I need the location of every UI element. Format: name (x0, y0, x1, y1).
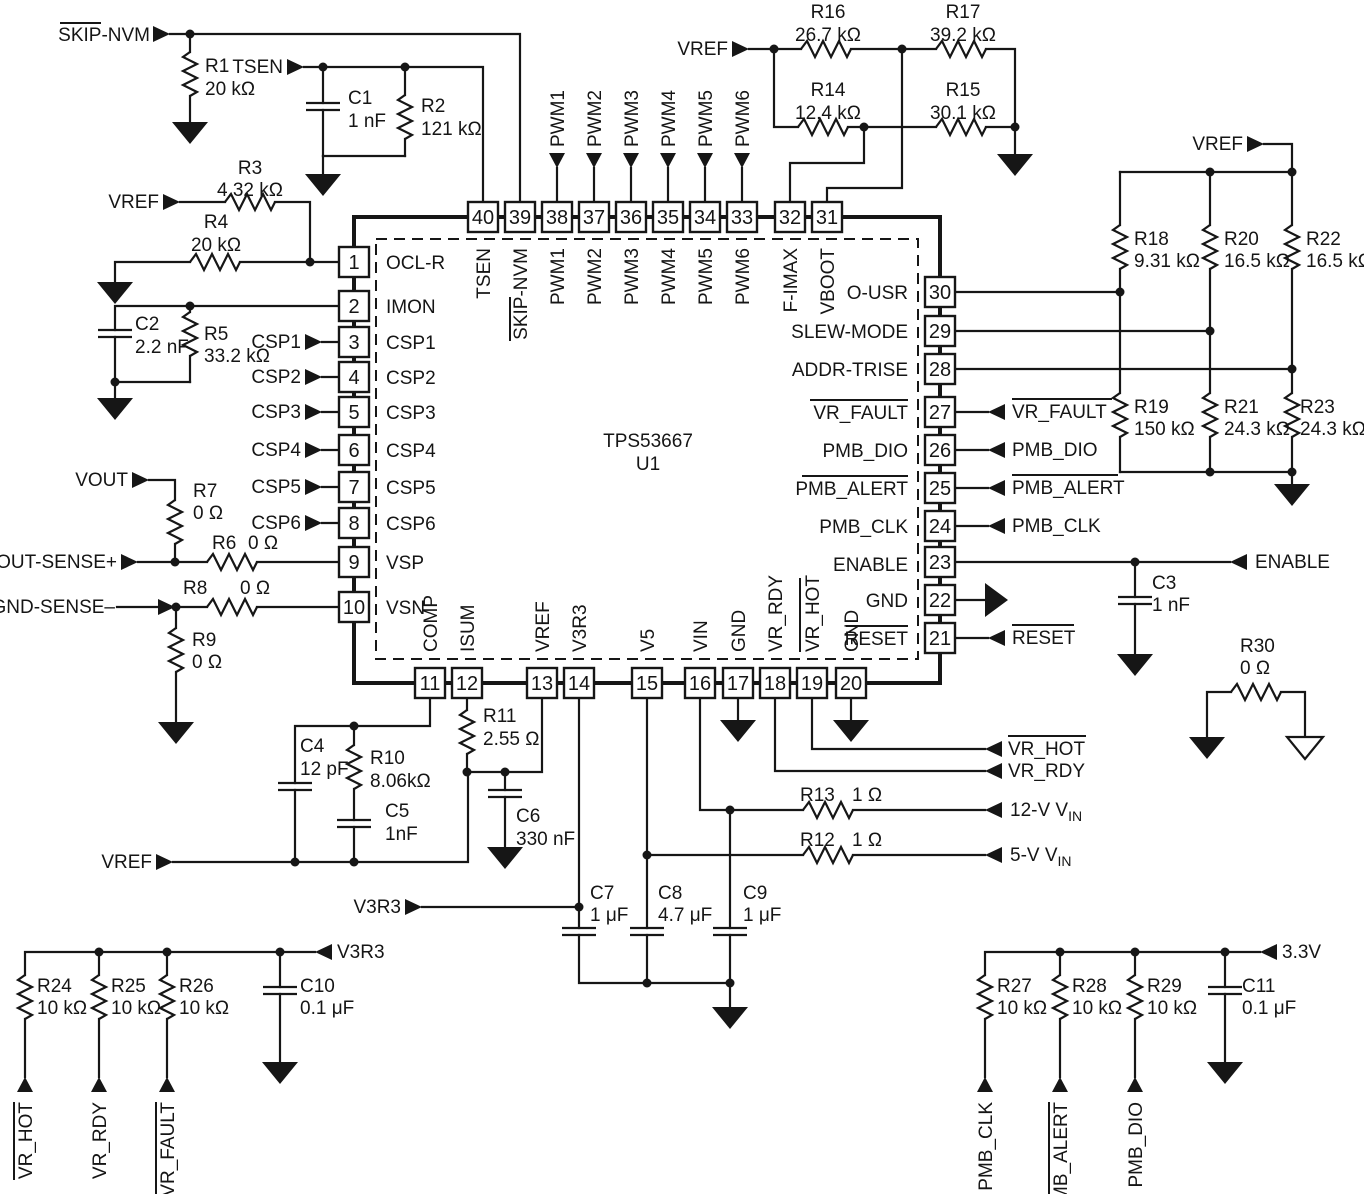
pin-name: V5 (638, 629, 659, 652)
r10-value: 8.06kΩ (370, 771, 431, 792)
net-vr-hot: VR_HOT (1008, 739, 1085, 760)
net-reset: RESET (1012, 628, 1076, 649)
pin-name: GND (842, 610, 863, 652)
pin-name: TSEN (474, 248, 495, 299)
r22-value: 16.5 kΩ (1306, 251, 1364, 272)
chip-part-number: TPS53667 (603, 431, 693, 452)
pin-number: 13 (531, 673, 553, 695)
pin-name: SLEW-MODE (791, 322, 908, 343)
net-vout: VOUT (75, 470, 128, 491)
c8-value: 4.7 μF (658, 905, 712, 926)
net-vref: VREF (677, 39, 728, 60)
net-pmb-alert: PMB_ALERT (1012, 478, 1125, 499)
r15-ref: R15 (946, 80, 981, 101)
net-gnd-sense-minus: GND-SENSE– (0, 597, 115, 618)
r26-value: 10 kΩ (179, 998, 229, 1019)
c9-value: 1 μF (743, 905, 781, 926)
pin-number: 23 (929, 552, 951, 574)
pin-name: VR_RDY (766, 575, 787, 652)
pin-name: PMB_CLK (819, 517, 908, 538)
pin-name: CSP4 (386, 441, 436, 462)
r11-value: 2.55 Ω (483, 729, 539, 750)
chip-refdes: U1 (636, 454, 660, 475)
pin-name: F-IMAX (781, 248, 802, 313)
net-csp2: CSP2 (251, 367, 301, 388)
pin-name: PWM1 (548, 248, 569, 305)
net-pmb-alert: PMB_ALERT (1051, 1102, 1072, 1194)
schematic-page: TPS53667 U1 1 2 3 4 5 6 7 8 9 10 OCL-R I… (0, 0, 1364, 1194)
c8-ref: C8 (658, 883, 682, 904)
pin-name: ADDR-TRISE (792, 360, 908, 381)
r21-value: 24.3 kΩ (1224, 419, 1290, 440)
r23-value: 24.3 kΩ (1300, 419, 1364, 440)
pin-name: O-USR (847, 283, 908, 304)
pin-number: 7 (348, 477, 359, 499)
r7-value: 0 Ω (193, 503, 223, 524)
net-pwm3: PWM3 (622, 90, 643, 147)
r20-ref: R20 (1224, 229, 1259, 250)
pin-name: ISUM (458, 605, 479, 653)
pin-name: VR_FAULT (813, 403, 908, 424)
net-vr-hot: VR_HOT (16, 1102, 37, 1179)
pin-number: 8 (348, 513, 359, 535)
r3-value: 4.32 kΩ (217, 180, 283, 201)
r11-ref: R11 (483, 706, 516, 727)
r18-value: 9.31 kΩ (1134, 251, 1200, 272)
r22-ref: R22 (1306, 229, 1341, 250)
net-csp6: CSP6 (251, 513, 301, 534)
net-v3r3: V3R3 (337, 942, 385, 963)
r17-ref: R17 (946, 2, 981, 23)
pin-number: 3 (348, 332, 359, 354)
pin-number: 10 (343, 597, 365, 619)
pin-name: CSP5 (386, 478, 436, 499)
r15-value: 30.1 kΩ (930, 103, 996, 124)
c1-ref: C1 (348, 88, 372, 109)
pin-number: 11 (420, 673, 441, 695)
r8-value: 0 Ω (240, 578, 270, 599)
net-pmb-clk: PMB_CLK (976, 1102, 997, 1191)
pin-name: VSP (386, 553, 424, 574)
c3-value: 1 nF (1152, 595, 1190, 616)
pin-number: 25 (929, 478, 951, 500)
r26-ref: R26 (179, 976, 214, 997)
c5-value: 1nF (385, 824, 418, 845)
pin-name: PWM4 (659, 248, 680, 305)
net-pmb-dio: PMB_DIO (1126, 1102, 1147, 1188)
net-pwm4: PWM4 (659, 90, 680, 147)
r27-ref: R27 (997, 976, 1032, 997)
net-csp3: CSP3 (251, 402, 301, 423)
r1-ref: R1 (205, 56, 229, 77)
pin-name: VBOOT (818, 248, 839, 315)
pin-number: 36 (620, 207, 642, 229)
c1-value: 1 nF (348, 111, 386, 132)
net-vr-fault: VR_FAULT (158, 1102, 179, 1194)
pin-name: OCL-R (386, 253, 445, 274)
r27-value: 10 kΩ (997, 998, 1047, 1019)
r30-value: 0 Ω (1240, 658, 1270, 679)
c4-value: 12 pF (300, 759, 349, 780)
pin-name: GND (729, 610, 750, 652)
pin-name: V3R3 (570, 604, 591, 652)
pin-number: 31 (816, 207, 838, 229)
net-pwm2: PWM2 (585, 90, 606, 147)
pin-number: 37 (583, 207, 605, 229)
net-pmb-dio: PMB_DIO (1012, 440, 1098, 461)
r13-value: 1 Ω (852, 785, 882, 806)
r25-ref: R25 (111, 976, 146, 997)
c10-ref: C10 (300, 976, 335, 997)
pin-number: 39 (509, 207, 531, 229)
pin-number: 1 (348, 252, 359, 274)
pin-number: 32 (779, 207, 801, 229)
c11-value: 0.1 μF (1242, 998, 1296, 1019)
pin-number: 26 (929, 440, 951, 462)
r9-value: 0 Ω (192, 652, 222, 673)
r3-ref: R3 (238, 158, 262, 179)
r12-ref: R12 (800, 830, 835, 851)
pin-name: VIN (691, 620, 712, 652)
r2-value: 121 kΩ (421, 119, 482, 140)
c5-ref: C5 (385, 801, 409, 822)
r14-ref: R14 (811, 80, 846, 101)
net-pwm6: PWM6 (733, 90, 754, 147)
pin-number: 28 (929, 359, 951, 381)
net-vref: VREF (1192, 134, 1243, 155)
c9-ref: C9 (743, 883, 767, 904)
r8-ref: R8 (183, 578, 207, 599)
pin-name: PWM2 (585, 248, 606, 305)
pin-number: 34 (694, 207, 716, 229)
c7-ref: C7 (590, 883, 614, 904)
pin-number: 14 (568, 673, 590, 695)
r20-value: 16.5 kΩ (1224, 251, 1290, 272)
pin-number: 29 (929, 321, 951, 343)
r30-ref: R30 (1240, 636, 1275, 657)
r18-ref: R18 (1134, 229, 1169, 250)
pin-name: VR_HOT (803, 575, 824, 652)
net-vout-sense-plus: VOUT-SENSE+ (0, 552, 117, 573)
net-vref: VREF (108, 192, 159, 213)
r4-ref: R4 (204, 212, 229, 233)
pin-name: VSN (386, 598, 425, 619)
net-skip-nvm: SKIP-NVM (58, 25, 150, 46)
r7-ref: R7 (193, 481, 217, 502)
pin-number: 40 (472, 207, 494, 229)
schematic-canvas: TPS53667 U1 1 2 3 4 5 6 7 8 9 10 OCL-R I… (0, 0, 1364, 1194)
r4-value: 20 kΩ (191, 235, 241, 256)
net-vr-rdy: VR_RDY (90, 1102, 111, 1179)
r24-ref: R24 (37, 976, 72, 997)
c11-ref: C11 (1242, 976, 1275, 997)
pin-number: 24 (929, 516, 951, 538)
net-vr-fault: VR_FAULT (1012, 402, 1107, 423)
pin-number: 38 (546, 207, 568, 229)
pin-number: 4 (348, 367, 359, 389)
net-enable: ENABLE (1255, 552, 1330, 573)
pin-number: 15 (636, 673, 658, 695)
net-vref: VREF (101, 852, 152, 873)
r29-ref: R29 (1147, 976, 1182, 997)
pin-name: IMON (386, 297, 436, 318)
pin-name: GND (866, 591, 908, 612)
pin-number: 18 (764, 673, 786, 695)
net-3v3: 3.3V (1282, 942, 1321, 963)
r28-ref: R28 (1072, 976, 1107, 997)
pin-number: 21 (929, 628, 951, 650)
c10-value: 0.1 μF (300, 998, 354, 1019)
pin-number: 19 (801, 673, 823, 695)
net-tsen: TSEN (232, 57, 283, 78)
pin-number: 27 (929, 402, 951, 424)
pin-name: CSP2 (386, 368, 436, 389)
net-csp5: CSP5 (251, 477, 301, 498)
pin-name: SKIP-NVM (511, 248, 532, 340)
net-pmb-clk: PMB_CLK (1012, 516, 1101, 537)
r10-ref: R10 (370, 748, 405, 769)
r29-value: 10 kΩ (1147, 998, 1197, 1019)
net-pwm1: PWM1 (548, 90, 569, 147)
net-v3r3: V3R3 (353, 897, 401, 918)
pin-number: 20 (840, 673, 862, 695)
net-vr-rdy: VR_RDY (1008, 761, 1085, 782)
c6-value: 330 nF (516, 829, 575, 850)
pin-name: PMB_DIO (822, 441, 908, 462)
pin-name: CSP6 (386, 514, 436, 535)
r28-value: 10 kΩ (1072, 998, 1122, 1019)
pin-name: CSP1 (386, 333, 436, 354)
r25-value: 10 kΩ (111, 998, 161, 1019)
r19-value: 150 kΩ (1134, 419, 1195, 440)
pin-name: CSP3 (386, 403, 436, 424)
pin-number: 17 (727, 673, 749, 695)
pin-name: ENABLE (833, 555, 908, 576)
r12-value: 1 Ω (852, 830, 882, 851)
pin-number: 22 (929, 590, 951, 612)
r24-value: 10 kΩ (37, 998, 87, 1019)
c2-ref: C2 (135, 314, 159, 335)
r6-ref: R6 (212, 533, 236, 554)
pin-number: 30 (929, 282, 951, 304)
c4-ref: C4 (300, 736, 325, 757)
pin-name: PWM3 (622, 248, 643, 305)
pin-number: 16 (689, 673, 711, 695)
r1-value: 20 kΩ (205, 79, 255, 100)
r13-ref: R13 (800, 785, 835, 806)
r17-value: 39.2 kΩ (930, 25, 996, 46)
pin-number: 35 (657, 207, 679, 229)
c3-ref: C3 (1152, 573, 1176, 594)
pin-number: 12 (456, 673, 478, 695)
c6-ref: C6 (516, 806, 540, 827)
c2-value: 2.2 nF (135, 337, 189, 358)
pin-number: 5 (348, 402, 359, 424)
pin-number: 33 (731, 207, 753, 229)
pin-name: VREF (533, 601, 554, 652)
r19-ref: R19 (1134, 397, 1169, 418)
r2-ref: R2 (421, 96, 445, 117)
pin-name: PMB_ALERT (795, 479, 908, 500)
r6-value: 0 Ω (248, 533, 278, 554)
r14-value: 12.4 kΩ (795, 103, 861, 124)
c7-value: 1 μF (590, 905, 628, 926)
pin-number: 6 (348, 440, 359, 462)
r21-ref: R21 (1224, 397, 1259, 418)
r16-ref: R16 (811, 2, 846, 23)
r16-value: 26.7 kΩ (795, 25, 861, 46)
r5-ref: R5 (204, 324, 228, 345)
pin-number: 2 (348, 296, 359, 318)
net-pwm5: PWM5 (696, 90, 717, 147)
net-csp4: CSP4 (251, 440, 301, 461)
pin-number: 9 (348, 552, 359, 574)
pin-name: PWM6 (733, 248, 754, 305)
r23-ref: R23 (1300, 397, 1335, 418)
pin-name: PWM5 (696, 248, 717, 305)
r9-ref: R9 (192, 630, 216, 651)
net-csp1: CSP1 (251, 332, 301, 353)
pin-name: COMP (421, 595, 442, 652)
